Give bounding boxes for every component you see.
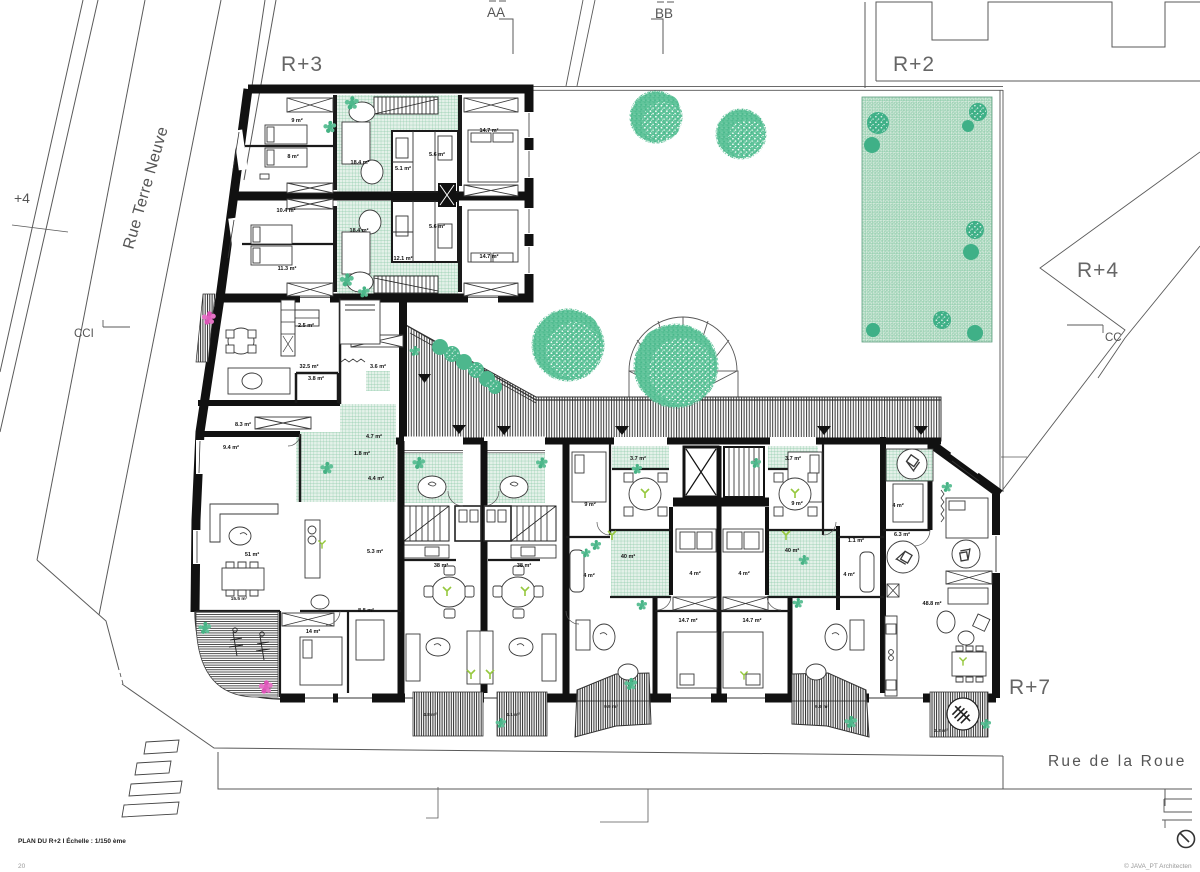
svg-text:9 m²: 9 m² (291, 117, 302, 124)
svg-text:12.1 m²: 12.1 m² (394, 255, 413, 262)
svg-text:18.4 m²: 18.4 m² (351, 159, 370, 166)
svg-text:PLAN DU R+2 I Échelle : 1/150: PLAN DU R+2 I Échelle : 1/150 ème (18, 836, 126, 845)
svg-text:5.1 m²: 5.1 m² (395, 165, 411, 172)
svg-text:2.2 m²: 2.2 m² (934, 728, 948, 734)
svg-text:4 m²: 4 m² (738, 570, 749, 577)
svg-text:3.8 m²: 3.8 m² (308, 375, 324, 382)
svg-text:9.9 m²: 9.9 m² (604, 704, 618, 710)
svg-text:4.8 m²: 4.8 m² (423, 712, 437, 718)
svg-text:AA: AA (487, 5, 505, 20)
svg-text:8 m²: 8 m² (287, 153, 298, 160)
svg-text:9 m²: 9 m² (584, 501, 595, 508)
svg-text:+4: +4 (14, 190, 30, 206)
svg-text:11.3 m²: 11.3 m² (278, 265, 297, 272)
svg-text:4.4 m²: 4.4 m² (368, 475, 384, 482)
svg-text:14.7 m²: 14.7 m² (480, 253, 499, 260)
svg-text:3.7 m²: 3.7 m² (785, 455, 801, 462)
svg-text:4.1 m²: 4.1 m² (506, 712, 520, 718)
svg-text:32.5 m²: 32.5 m² (300, 363, 319, 370)
svg-text:3.7 m²: 3.7 m² (630, 455, 646, 462)
svg-text:R+4: R+4 (1077, 259, 1119, 282)
svg-text:14.7 m²: 14.7 m² (480, 127, 499, 134)
svg-text:CCI: CCI (74, 328, 94, 340)
svg-text:8.8 m²: 8.8 m² (358, 607, 374, 614)
svg-text:51 m²: 51 m² (245, 551, 260, 558)
svg-text:4 m²: 4 m² (583, 572, 594, 579)
svg-text:38 m²: 38 m² (517, 562, 532, 569)
svg-text:4.7 m²: 4.7 m² (366, 433, 382, 440)
svg-text:20: 20 (18, 863, 26, 870)
svg-text:BB: BB (655, 6, 673, 21)
svg-text:6.3 m²: 6.3 m² (894, 531, 910, 538)
svg-text:4 m²: 4 m² (689, 570, 700, 577)
svg-text:1.8 m²: 1.8 m² (354, 450, 370, 457)
svg-text:9.9 m²: 9.9 m² (815, 704, 829, 710)
svg-text:R+2: R+2 (893, 53, 935, 76)
svg-text:3.6 m²: 3.6 m² (370, 363, 386, 370)
svg-text:8.3 m²: 8.3 m² (235, 421, 251, 428)
svg-text:5.6 m²: 5.6 m² (429, 223, 445, 230)
svg-text:R+3: R+3 (281, 53, 323, 76)
svg-text:5.3 m²: 5.3 m² (367, 548, 383, 555)
svg-text:14 m²: 14 m² (306, 628, 321, 635)
svg-text:40 m²: 40 m² (785, 547, 800, 554)
svg-text:18.4 m²: 18.4 m² (350, 227, 369, 234)
svg-text:15.5 m²: 15.5 m² (231, 596, 248, 602)
svg-text:10.4 m²: 10.4 m² (277, 207, 296, 214)
svg-text:4 m²: 4 m² (843, 571, 854, 578)
svg-text:9.4 m²: 9.4 m² (223, 444, 239, 451)
svg-text:40 m²: 40 m² (621, 553, 636, 560)
svg-text:1.1 m²: 1.1 m² (848, 537, 864, 544)
svg-text:5.6 m²: 5.6 m² (429, 151, 445, 158)
svg-text:48.8 m²: 48.8 m² (923, 600, 942, 607)
svg-text:4 m²: 4 m² (892, 502, 903, 509)
svg-text:9 m²: 9 m² (791, 500, 802, 507)
svg-text:CC: CC (1105, 332, 1122, 344)
svg-text:© JAVA_PT Architecten: © JAVA_PT Architecten (1124, 862, 1192, 870)
svg-text:38 m²: 38 m² (434, 562, 449, 569)
svg-text:Rue de la Roue: Rue de la Roue (1048, 753, 1187, 770)
svg-text:2.5 m²: 2.5 m² (298, 322, 314, 329)
svg-text:14.7 m²: 14.7 m² (743, 617, 762, 624)
svg-text:R+7: R+7 (1009, 676, 1051, 699)
svg-text:14.7 m²: 14.7 m² (679, 617, 698, 624)
